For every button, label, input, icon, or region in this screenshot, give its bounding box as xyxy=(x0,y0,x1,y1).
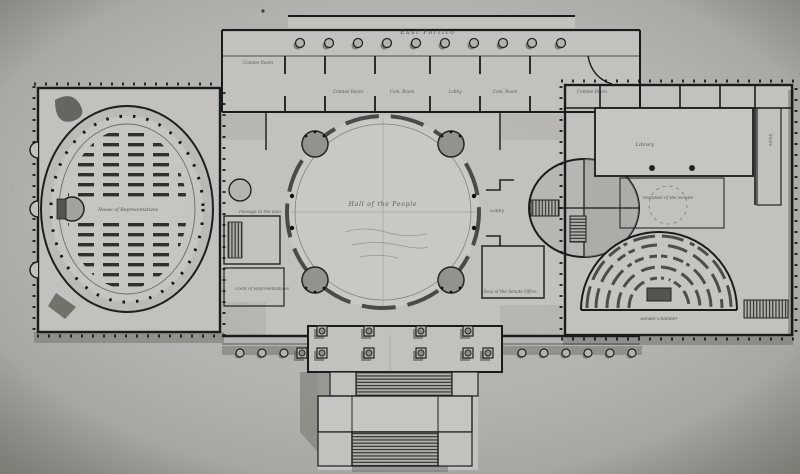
vignette-overlay xyxy=(0,0,800,474)
floor-plan-sheet: East Portico Comtee Room Comtee Room Com… xyxy=(0,0,800,474)
floor-plan-drawing: East Portico Comtee Room Comtee Room Com… xyxy=(0,0,800,474)
